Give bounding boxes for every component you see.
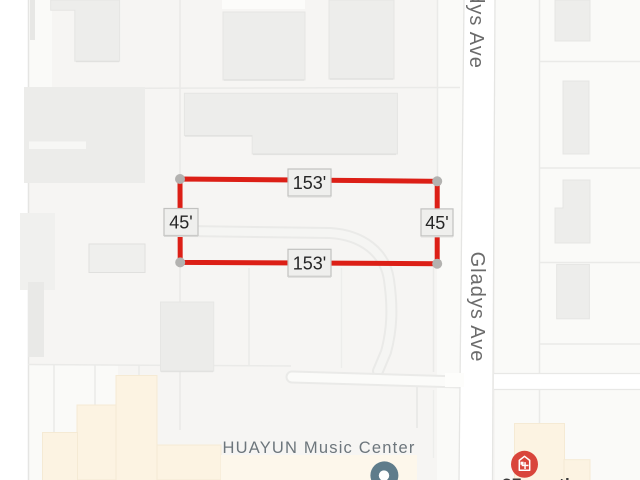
svg-text:45': 45' <box>425 213 448 233</box>
svg-text:HUAYUN Music Center: HUAYUN Music Center <box>222 439 415 457</box>
svg-text:45': 45' <box>169 213 192 233</box>
svg-text:153': 153' <box>293 253 326 273</box>
svg-text:Gladys Ave: Gladys Ave <box>465 0 487 69</box>
svg-text:37 south: 37 south <box>502 475 576 480</box>
svg-text:Gladys Ave: Gladys Ave <box>466 252 488 363</box>
svg-text:153': 153' <box>293 173 326 193</box>
